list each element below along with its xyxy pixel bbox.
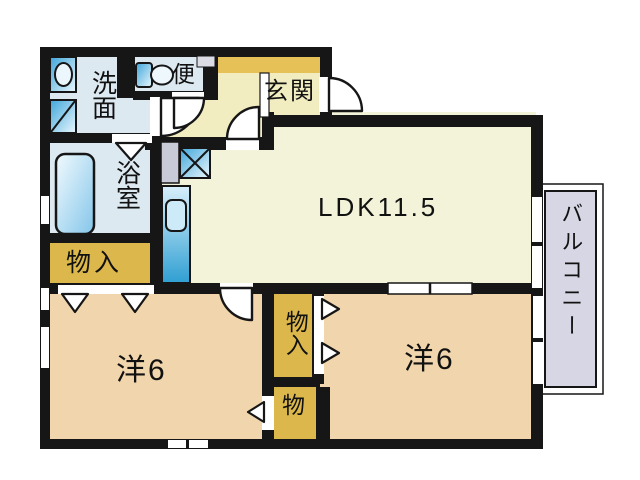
western-left-bottom-window-a bbox=[168, 440, 186, 448]
western-right-window-upper bbox=[533, 296, 543, 338]
toilet-label: 便 bbox=[172, 62, 195, 87]
storage-small-label: 物 bbox=[282, 393, 305, 418]
western-right-label: 洋6 bbox=[404, 343, 455, 376]
wall-washroom-toilet bbox=[117, 52, 135, 98]
bathtub-icon bbox=[56, 154, 94, 234]
western-left-window-upper bbox=[41, 288, 49, 310]
bathroom-door-opening bbox=[112, 134, 152, 143]
storage-left-opening bbox=[58, 285, 154, 294]
entrance-door-swing-icon bbox=[329, 78, 362, 111]
kitchen-sink-icon bbox=[166, 200, 186, 231]
western-right-window-lower bbox=[533, 342, 543, 384]
vanity-basin-icon bbox=[55, 63, 72, 86]
western-left-label: 洋6 bbox=[116, 354, 167, 387]
balcony-label: バルコニー bbox=[558, 202, 582, 342]
wall-ldk-top bbox=[262, 115, 540, 127]
bathroom-label: 浴室 bbox=[112, 160, 140, 210]
pipe-space-box bbox=[161, 142, 179, 183]
toilet-tank-icon bbox=[136, 63, 152, 87]
floorplan-canvas: 洗面 便 玄関 浴室 物入 LDK11.5 洋6 物入 物 洋6 バルコニー bbox=[0, 0, 640, 480]
wall-left bbox=[40, 47, 50, 449]
ldk-window-upper bbox=[532, 197, 542, 242]
washroom-label: 洗面 bbox=[88, 70, 116, 120]
wall-bottom bbox=[40, 439, 543, 449]
storage-left-label: 物入 bbox=[66, 250, 122, 278]
entrance-step-band bbox=[218, 57, 321, 73]
toilet-bowl-icon bbox=[151, 66, 173, 85]
entrance-label: 玄関 bbox=[264, 79, 316, 105]
wall-closet-divider bbox=[266, 377, 320, 387]
wall-bathroom-ldk bbox=[150, 133, 162, 294]
wall-top bbox=[40, 47, 331, 57]
western-left-window-lower bbox=[41, 327, 49, 368]
ldk-window-lower bbox=[532, 246, 542, 288]
ldk-label: LDK11.5 bbox=[318, 193, 438, 222]
duct-box bbox=[197, 56, 215, 67]
wall-closet-small-right bbox=[316, 387, 330, 443]
western-left-bottom-window-b bbox=[189, 440, 208, 448]
bathroom-window bbox=[41, 196, 49, 224]
storage-center-label: 物入 bbox=[282, 310, 307, 356]
